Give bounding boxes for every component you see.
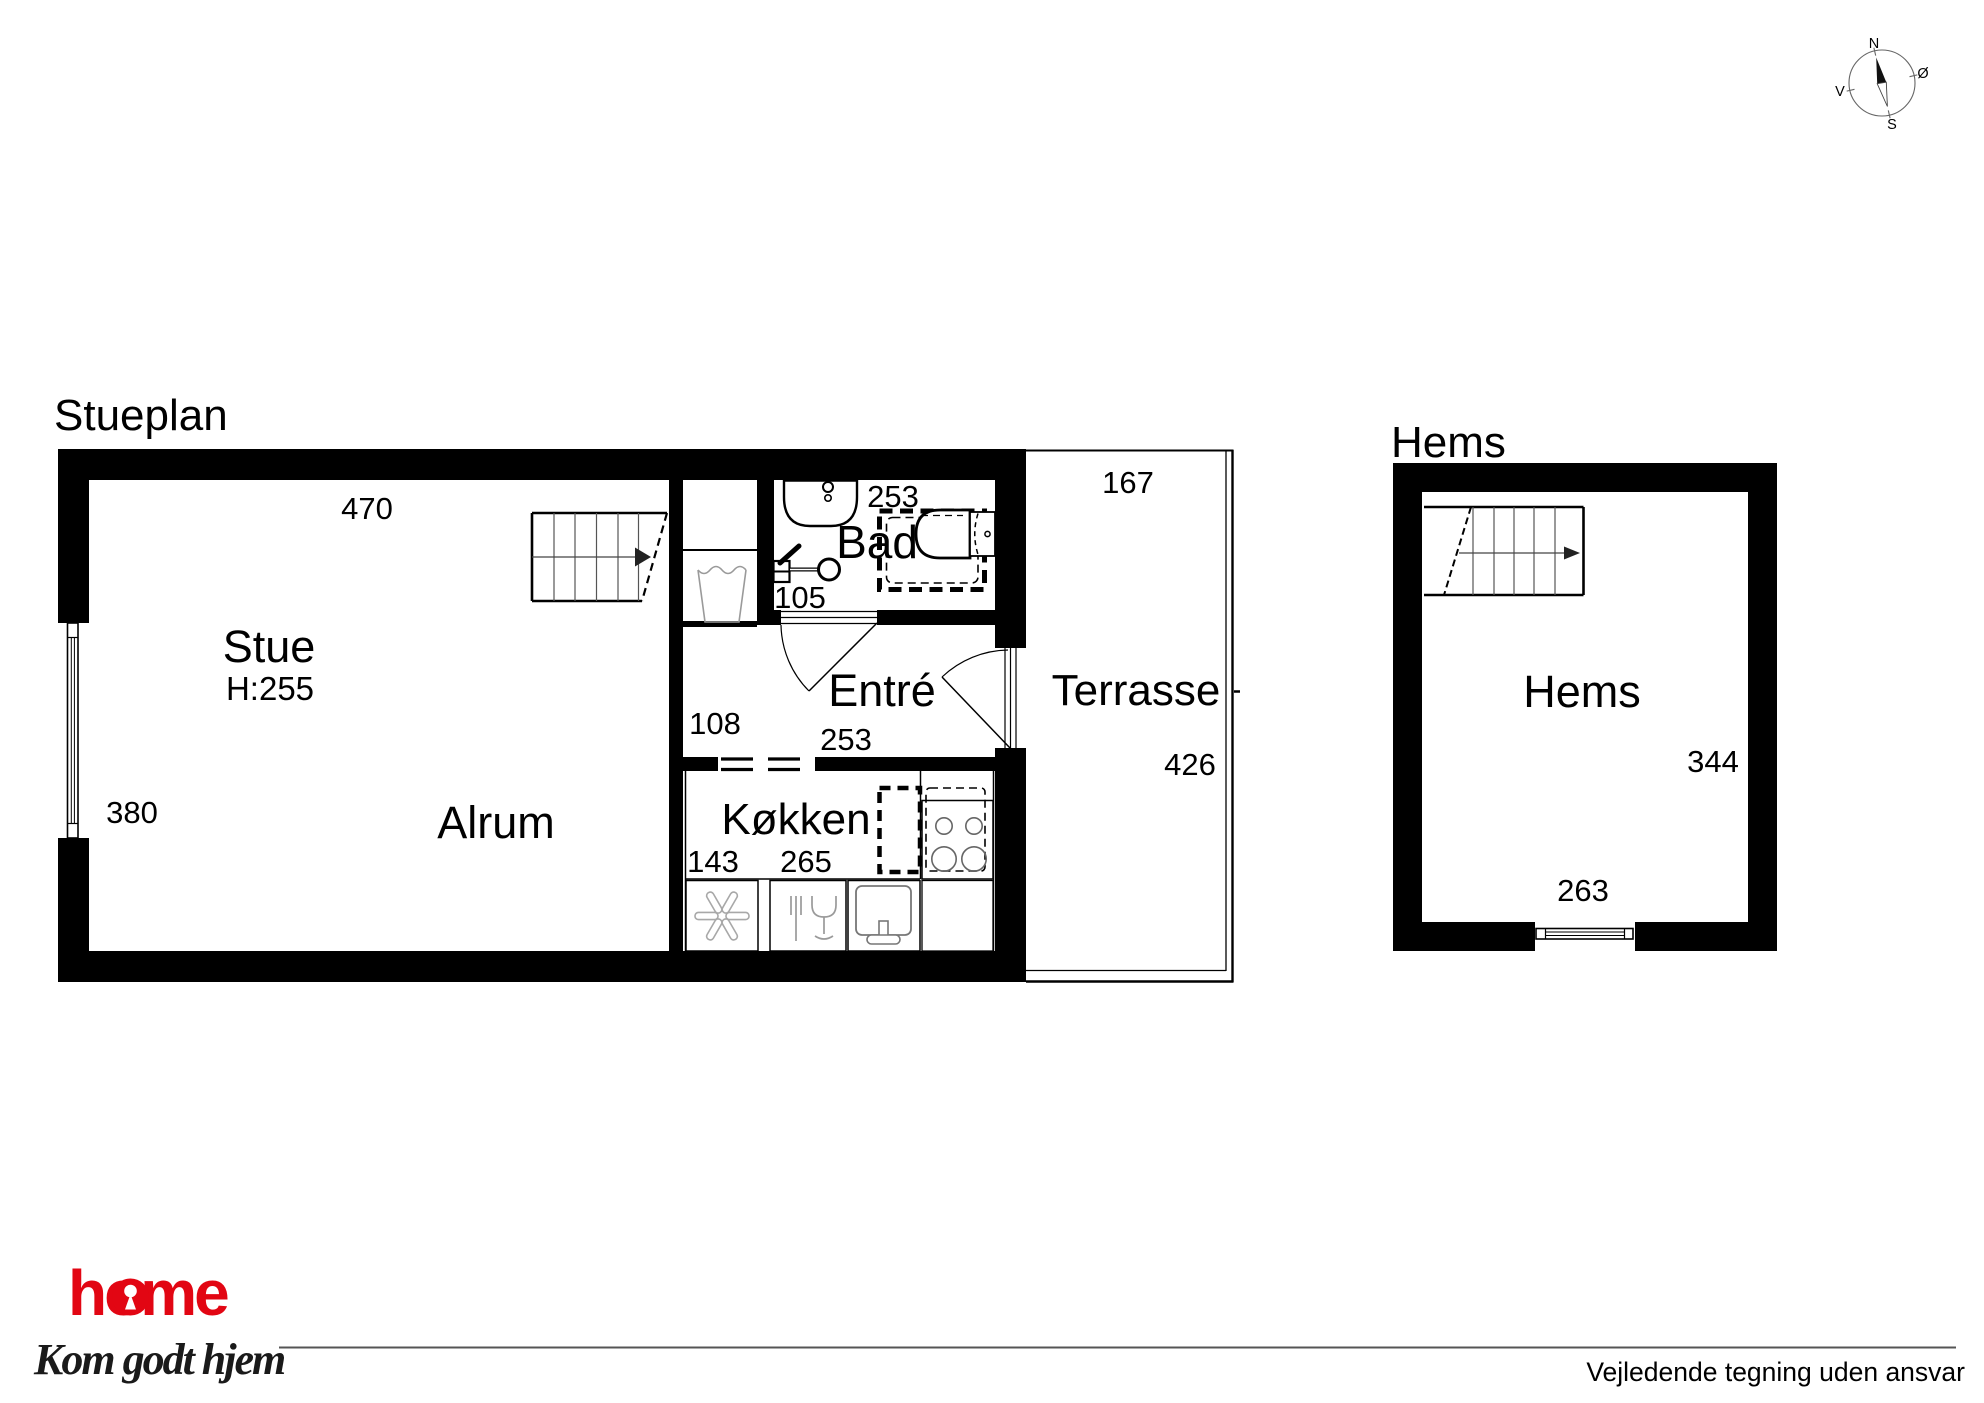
svg-text:167: 167 (1102, 465, 1154, 500)
svg-text:Ø: Ø (1917, 66, 1928, 82)
svg-text:N: N (1869, 36, 1879, 52)
svg-text:Stue: Stue (223, 621, 316, 672)
svg-text:Hems: Hems (1391, 418, 1506, 467)
svg-text:H:255: H:255 (226, 670, 314, 707)
svg-text:253: 253 (820, 722, 872, 757)
svg-text:Kom godt hjem: Kom godt hjem (33, 1335, 285, 1384)
svg-text:Alrum: Alrum (437, 797, 555, 848)
svg-text:Bad: Bad (836, 516, 918, 568)
svg-text:V: V (1835, 84, 1845, 100)
svg-text:Hems: Hems (1523, 666, 1641, 717)
svg-text:265: 265 (780, 844, 832, 879)
svg-text:253: 253 (867, 479, 919, 514)
svg-text:344: 344 (1687, 744, 1739, 779)
svg-text:105: 105 (774, 580, 826, 615)
svg-text:Vejledende tegning uden ansvar: Vejledende tegning uden ansvar (1586, 1357, 1965, 1387)
svg-text:S: S (1887, 117, 1897, 133)
svg-text:470: 470 (341, 491, 393, 526)
svg-text:Køkken: Køkken (721, 795, 870, 844)
svg-text:143: 143 (687, 844, 739, 879)
svg-text:108: 108 (689, 706, 741, 741)
svg-text:380: 380 (106, 795, 158, 830)
svg-text:263: 263 (1557, 873, 1609, 908)
svg-text:Stueplan: Stueplan (54, 391, 228, 440)
svg-text:426: 426 (1164, 747, 1216, 782)
svg-text:Entré: Entré (828, 665, 936, 716)
svg-text:Terrasse: Terrasse (1052, 666, 1221, 715)
